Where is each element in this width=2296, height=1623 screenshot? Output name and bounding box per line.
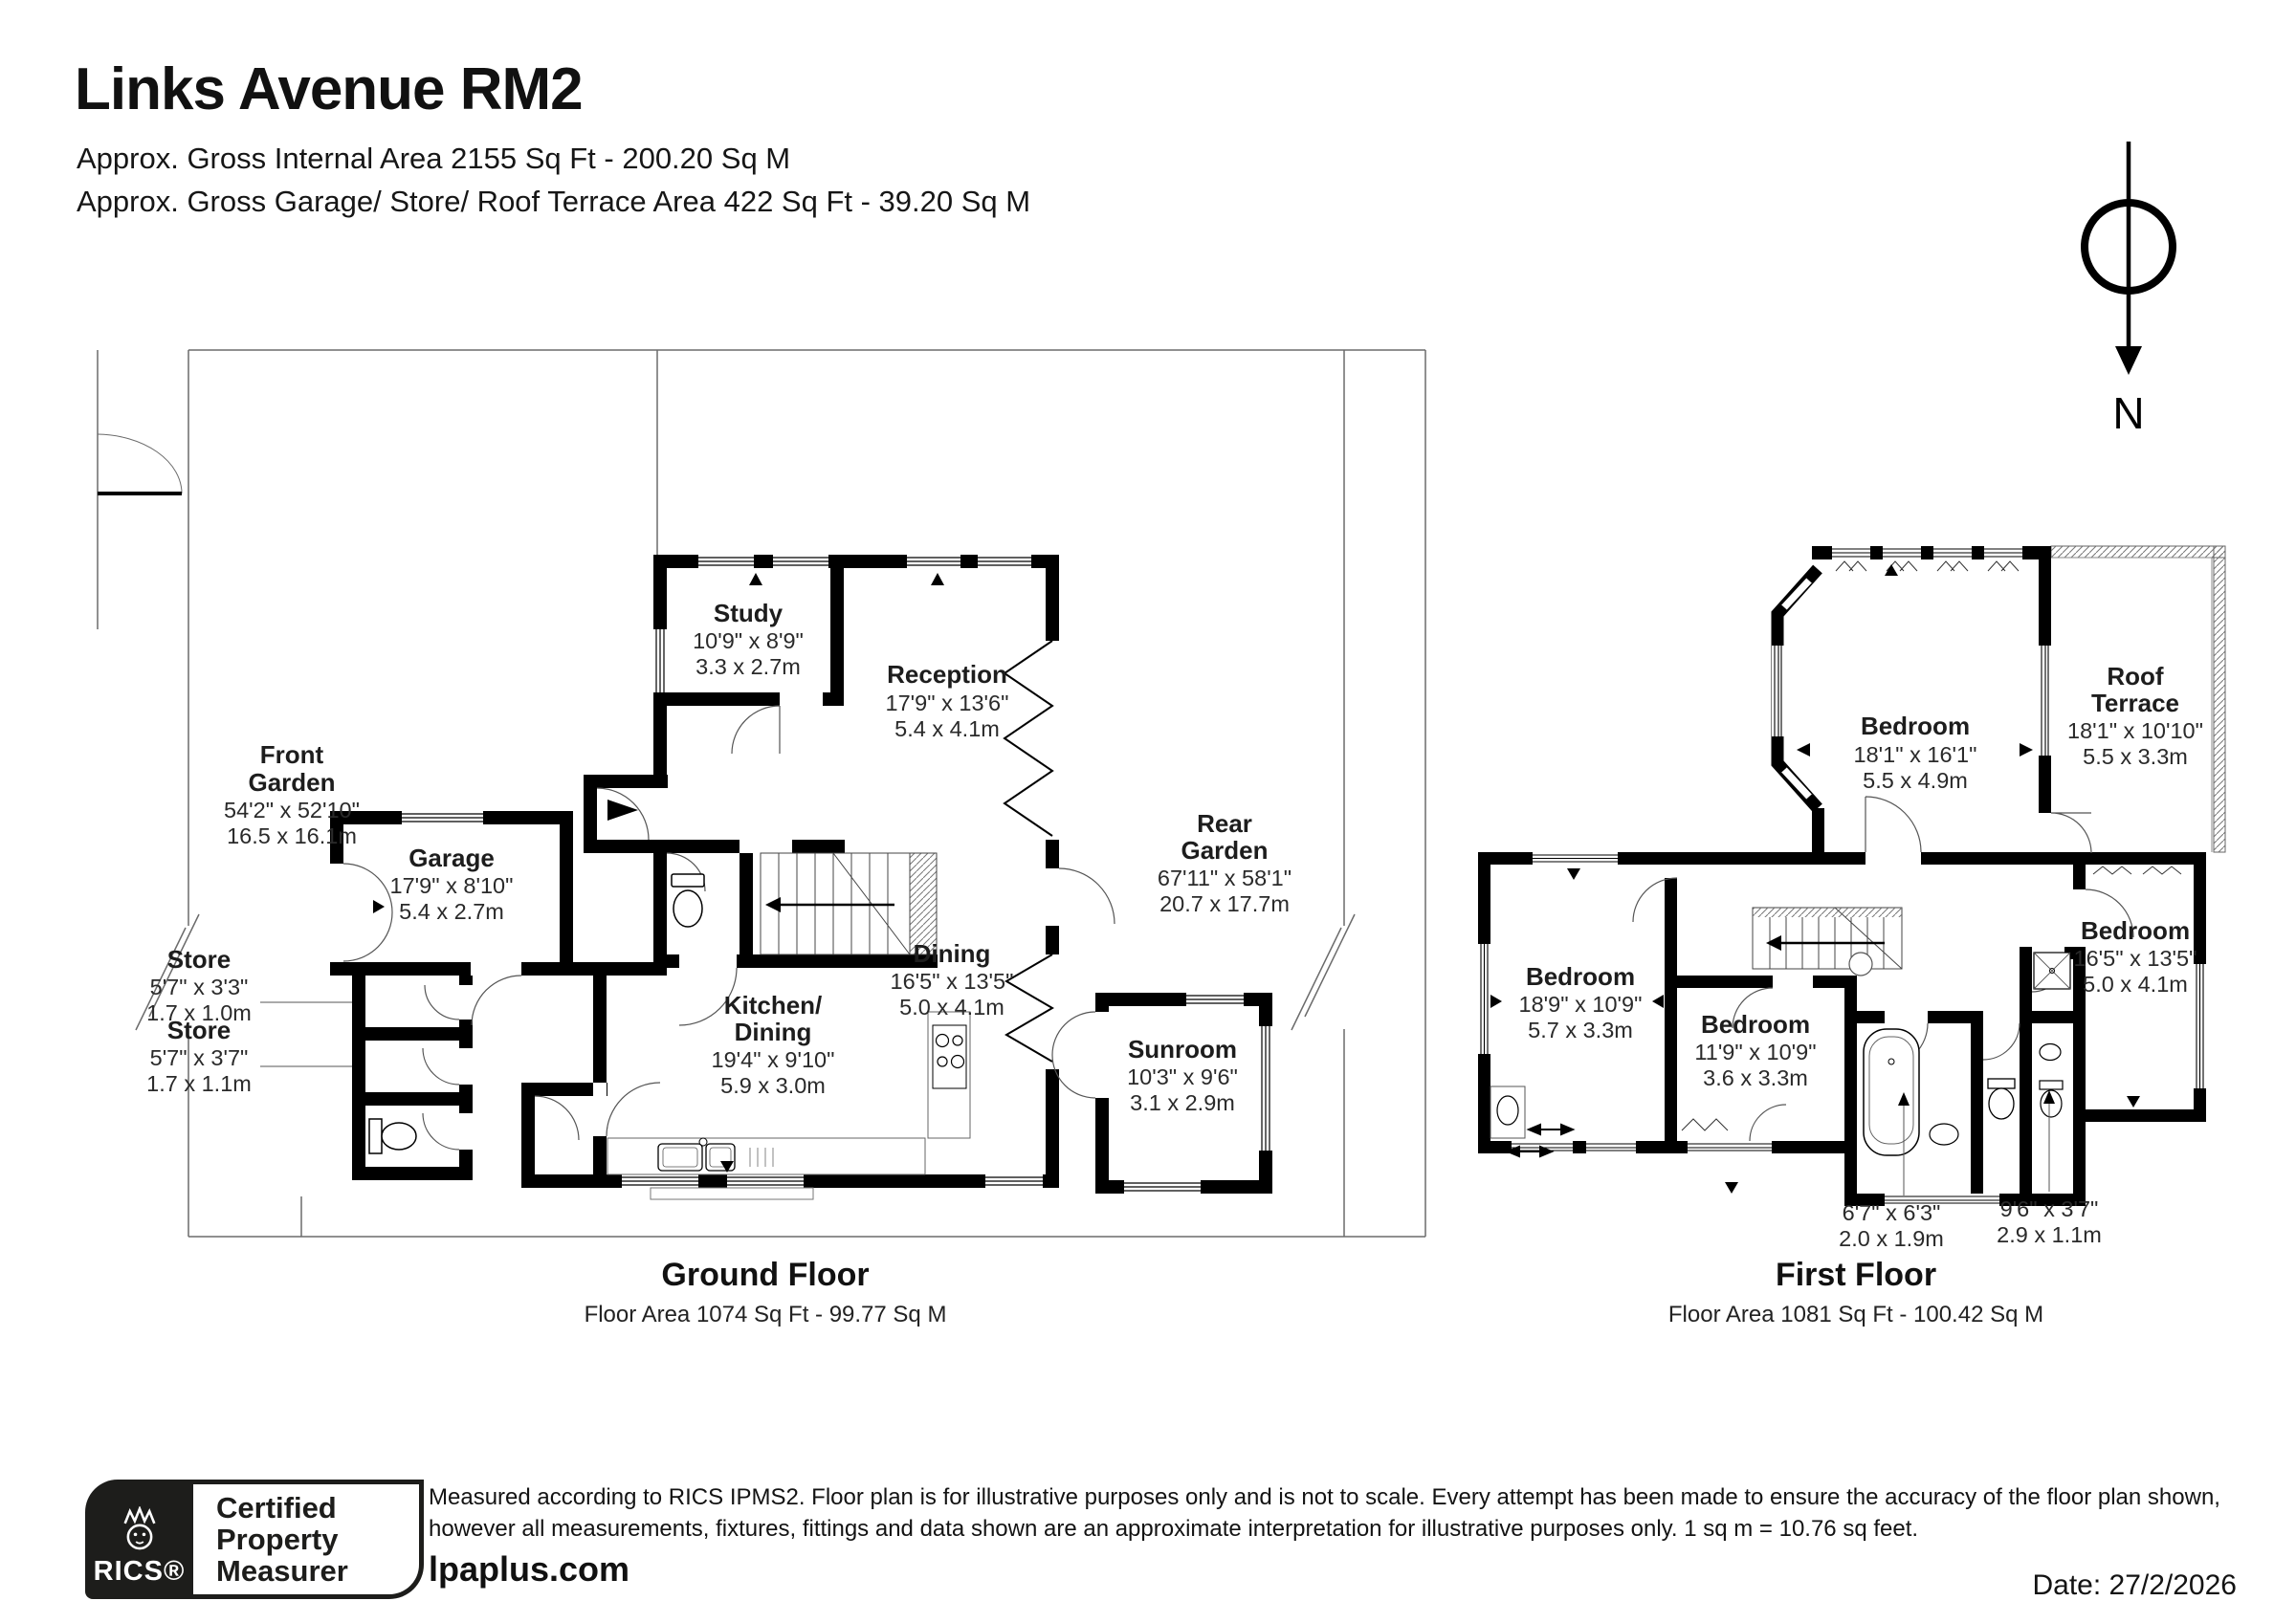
ground-floor-plan: Front Garden 54'2" x 52'10" 16.5 x 16.1m… (86, 342, 1445, 1251)
badge-line3: Measurer (216, 1555, 419, 1587)
open-plan-zigzags (1004, 641, 1052, 1062)
bathroom-imperial: 6'7" x 6'3" (1843, 1200, 1941, 1225)
shower-room-metric: 2.9 x 1.1m (1997, 1222, 2102, 1247)
certified-property-measurer: Certified Property Measurer (193, 1480, 424, 1599)
disclaimer-line1: Measured according to RICS IPMS2. Floor … (429, 1481, 2256, 1513)
date-label: Date: 27/2/2026 (2032, 1569, 2237, 1602)
disclaimer-line2: however all measurements, fixtures, fitt… (429, 1513, 2256, 1545)
front-garden-label: Front (260, 740, 324, 769)
ground-floor-caption: Ground Floor Floor Area 1074 Sq Ft - 99.… (86, 1257, 1445, 1328)
bedroom-main-imperial: 18'1" x 16'1" (1854, 742, 1977, 767)
first-floor-title: First Floor (1473, 1257, 2239, 1294)
rics-lion-icon (115, 1506, 165, 1550)
store1-label: Store (167, 945, 231, 974)
bedroom-middle-imperial: 11'9" x 10'9" (1694, 1040, 1816, 1064)
reception-label: Reception (887, 660, 1007, 689)
shower-room-imperial: 9'6" x 3'7" (2000, 1196, 2099, 1221)
hob-icon (928, 1012, 970, 1138)
reception-imperial: 17'9" x 13'6" (886, 691, 1009, 715)
store2-imperial: 5'7" x 3'7" (150, 1045, 249, 1070)
dining-label: Dining (914, 939, 991, 968)
shower-icon (2034, 953, 2070, 989)
page-title: Links Avenue RM2 (75, 55, 583, 123)
roof-terrace-label: Roof (2107, 662, 2164, 691)
badge-line2: Property (216, 1524, 419, 1555)
corner-basin-icon (1849, 953, 1872, 976)
sunroom-metric: 3.1 x 2.9m (1130, 1090, 1235, 1115)
gross-internal-area: Approx. Gross Internal Area 2155 Sq Ft -… (77, 142, 790, 176)
kitchen-metric: 5.9 x 3.0m (720, 1073, 826, 1098)
front-garden-imperial: 54'2" x 52'10" (224, 798, 360, 822)
store1-imperial: 5'7" x 3'3" (150, 975, 249, 999)
sunroom-label: Sunroom (1128, 1035, 1237, 1064)
bathtub-icon (1864, 1029, 1919, 1155)
store-wc-toilet-icon (369, 1119, 416, 1153)
dining-metric: 5.0 x 4.1m (899, 995, 1004, 1020)
roof-terrace-imperial: 18'1" x 10'10" (2067, 718, 2203, 743)
garage-imperial: 17'9" x 8'10" (390, 873, 514, 898)
floorplan-page: Links Avenue RM2 Approx. Gross Internal … (0, 0, 2296, 1623)
compass-north-label: N (2112, 388, 2144, 438)
rear-garden-imperial: 67'11" x 58'1" (1158, 866, 1291, 890)
ground-floor-area: Floor Area 1074 Sq Ft - 99.77 Sq M (86, 1302, 1445, 1328)
basin-icon (1930, 1124, 1958, 1145)
rics-badge: RICS® Certified Property Measurer (85, 1480, 424, 1599)
study-label: Study (714, 599, 784, 627)
kitchen-imperial: 19'4" x 9'10" (712, 1047, 835, 1072)
kitchen-label2: Dining (735, 1018, 812, 1046)
basin-icon (2040, 1044, 2061, 1061)
store2-metric: 1.7 x 1.1m (146, 1071, 252, 1096)
bedroom-main-metric: 5.5 x 4.9m (1863, 768, 1968, 793)
compass-north-icon: N (2057, 134, 2200, 440)
study-metric: 3.3 x 2.7m (695, 654, 801, 679)
store-leader-lines (260, 1002, 352, 1066)
roof-terrace-metric: 5.5 x 3.3m (2083, 744, 2188, 769)
sunroom-imperial: 10'3" x 9'6" (1127, 1064, 1238, 1089)
rear-garden-metric: 20.7 x 17.7m (1159, 891, 1290, 916)
rear-step (651, 1188, 813, 1199)
study-imperial: 10'9" x 8'9" (693, 628, 804, 653)
dining-imperial: 16'5" x 13'5" (891, 969, 1014, 994)
kitchen-label: Kitchen/ (724, 991, 823, 1020)
kitchen-counter (607, 1138, 925, 1199)
bedroom-right-label: Bedroom (2081, 916, 2190, 945)
first-walls (1478, 546, 2206, 1206)
disclaimer-text: Measured according to RICS IPMS2. Floor … (429, 1481, 2256, 1545)
bedroom-middle-metric: 3.6 x 3.3m (1703, 1065, 1808, 1090)
bedroom-main-label: Bedroom (1861, 712, 1970, 740)
staircase (761, 853, 937, 954)
staircase (1753, 908, 1902, 969)
wc-toilet-icon (672, 874, 704, 927)
reception-metric: 5.4 x 4.1m (894, 716, 1000, 741)
rear-garden-label: Rear (1197, 809, 1252, 838)
front-garden-metric: 16.5 x 16.1m (227, 823, 357, 848)
ground-floor-title: Ground Floor (86, 1257, 1445, 1294)
wardrobe-marks (1682, 866, 2181, 1130)
bedroom-left-metric: 5.7 x 3.3m (1528, 1018, 1633, 1042)
store2-label: Store (167, 1016, 231, 1044)
bedroom-middle-label: Bedroom (1701, 1010, 1810, 1039)
bedroom-left-imperial: 18'9" x 10'9" (1519, 992, 1643, 1017)
badge-line1: Certified (216, 1492, 419, 1524)
website-link[interactable]: lpaplus.com (429, 1549, 629, 1590)
bedroom-basin-icon (1490, 1086, 1525, 1138)
bedroom-right-metric: 5.0 x 4.1m (2083, 972, 2188, 997)
rics-brand: RICS® (94, 1556, 186, 1588)
bathroom-metric: 2.0 x 1.9m (1839, 1226, 1944, 1251)
garage-metric: 5.4 x 2.7m (399, 899, 504, 924)
first-floor-plan: Bedroom 18'1" x 16'1" 5.5 x 4.9m Roof Te… (1473, 526, 2239, 1253)
wc-toilet-icon (1988, 1079, 2015, 1119)
bedroom-left-label: Bedroom (1526, 962, 1635, 991)
gross-garage-area: Approx. Gross Garage/ Store/ Roof Terrac… (77, 185, 1030, 219)
windows (1478, 546, 2206, 1206)
rics-logo: RICS® (85, 1480, 193, 1599)
bedroom-right-imperial: 16'5" x 13'5" (2074, 946, 2197, 971)
roof-terrace-label2: Terrace (2091, 689, 2179, 717)
first-floor-caption: First Floor Floor Area 1081 Sq Ft - 100.… (1473, 1257, 2239, 1328)
ground-room-labels: Front Garden 54'2" x 52'10" 16.5 x 16.1m… (146, 599, 1291, 1115)
garage-label: Garage (408, 844, 495, 872)
first-floor-area: Floor Area 1081 Sq Ft - 100.42 Sq M (1473, 1302, 2239, 1328)
front-garden-label2: Garden (248, 768, 335, 797)
rear-garden-label2: Garden (1181, 836, 1268, 865)
